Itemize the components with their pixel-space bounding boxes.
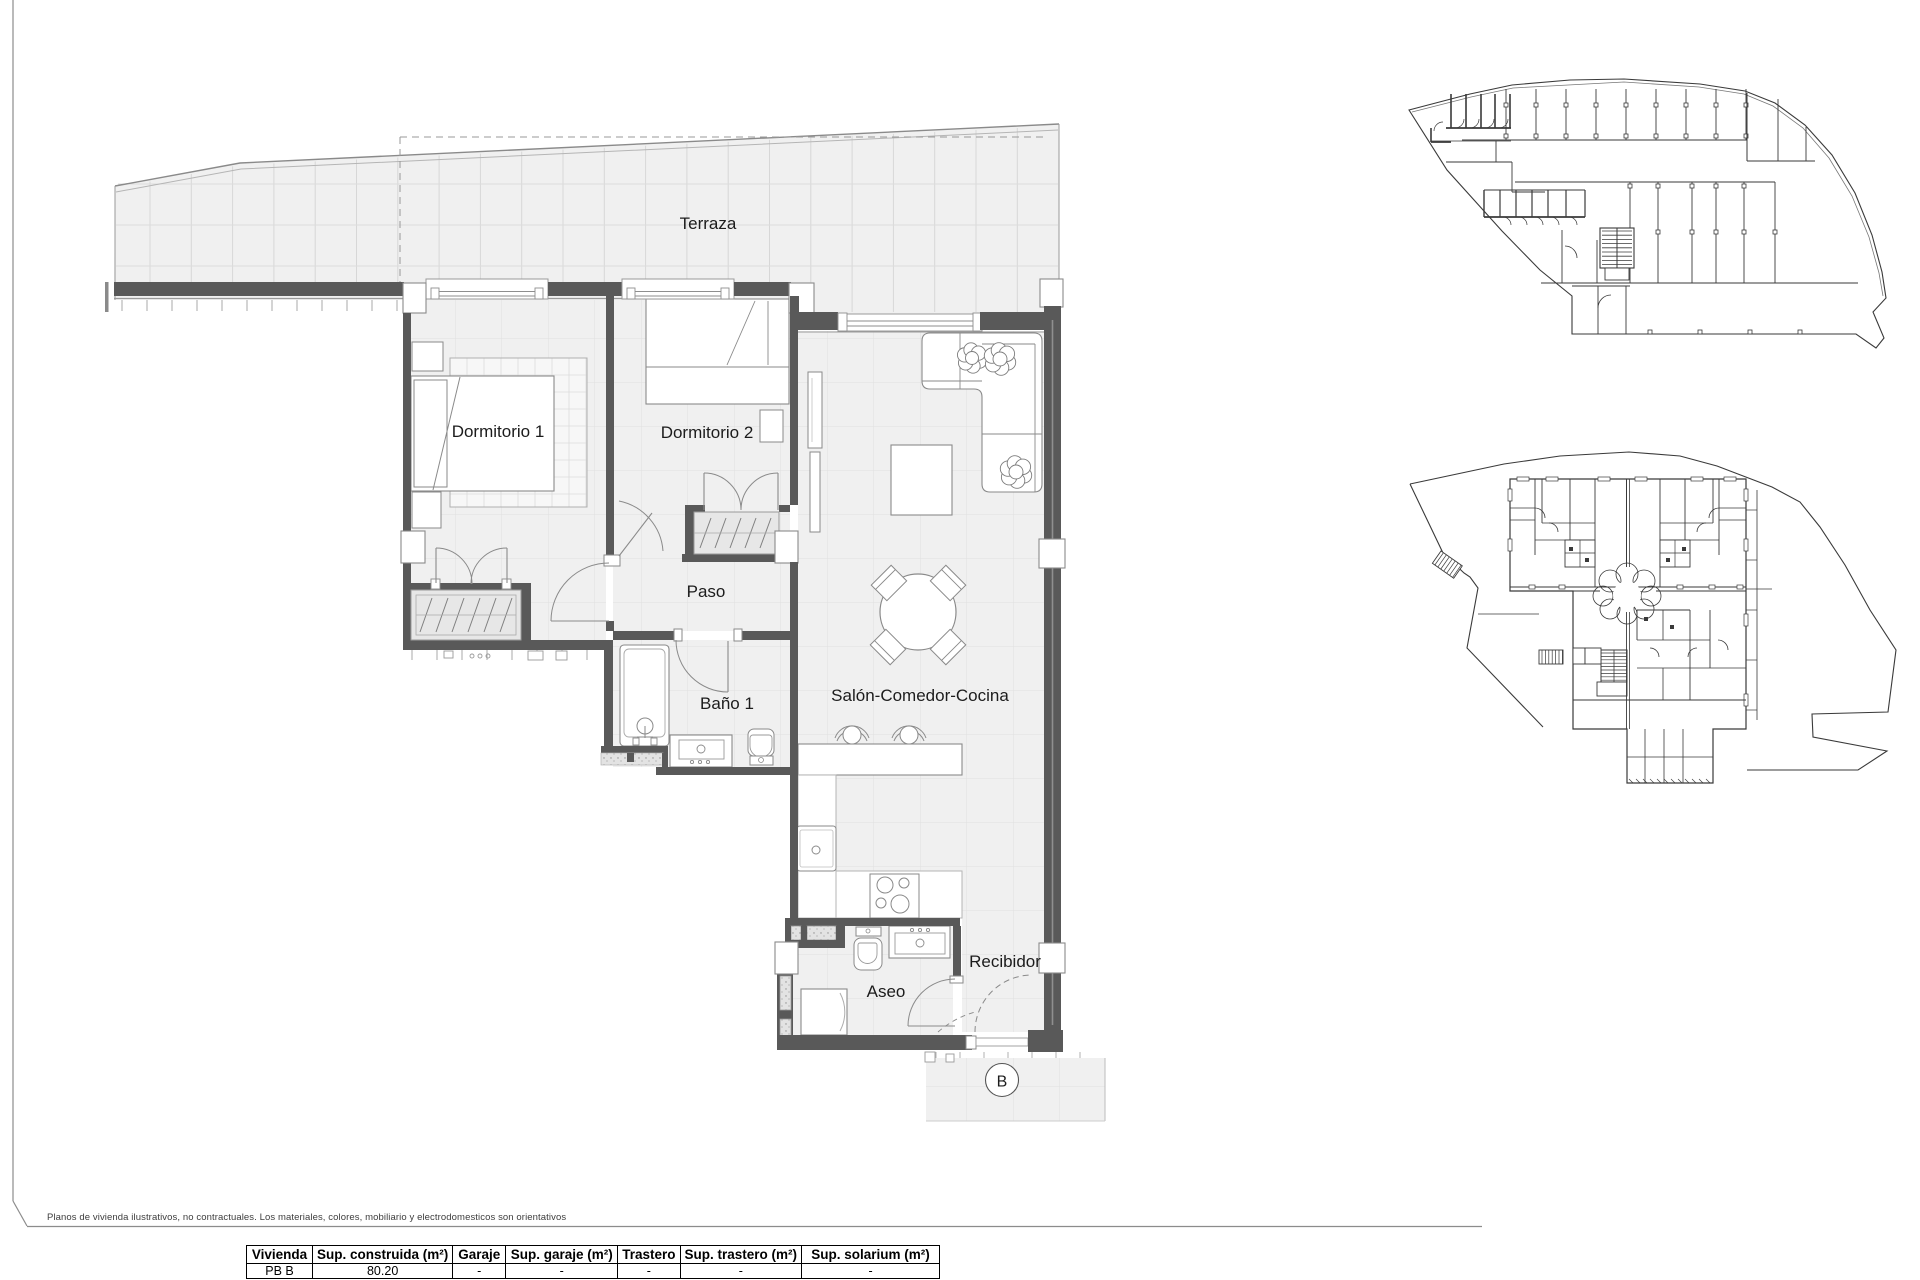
svg-text:Dormitorio 1: Dormitorio 1 xyxy=(452,422,545,441)
svg-text:Aseo: Aseo xyxy=(867,982,906,1001)
svg-text:Terraza: Terraza xyxy=(680,214,737,233)
svg-text:Dormitorio 2: Dormitorio 2 xyxy=(661,423,754,442)
svg-text:Recibidor: Recibidor xyxy=(969,952,1041,971)
svg-text:B: B xyxy=(997,1074,1008,1091)
svg-text:Baño 1: Baño 1 xyxy=(700,694,754,713)
svg-text:Salón-Comedor-Cocina: Salón-Comedor-Cocina xyxy=(831,686,1009,705)
svg-text:Paso: Paso xyxy=(687,582,726,601)
